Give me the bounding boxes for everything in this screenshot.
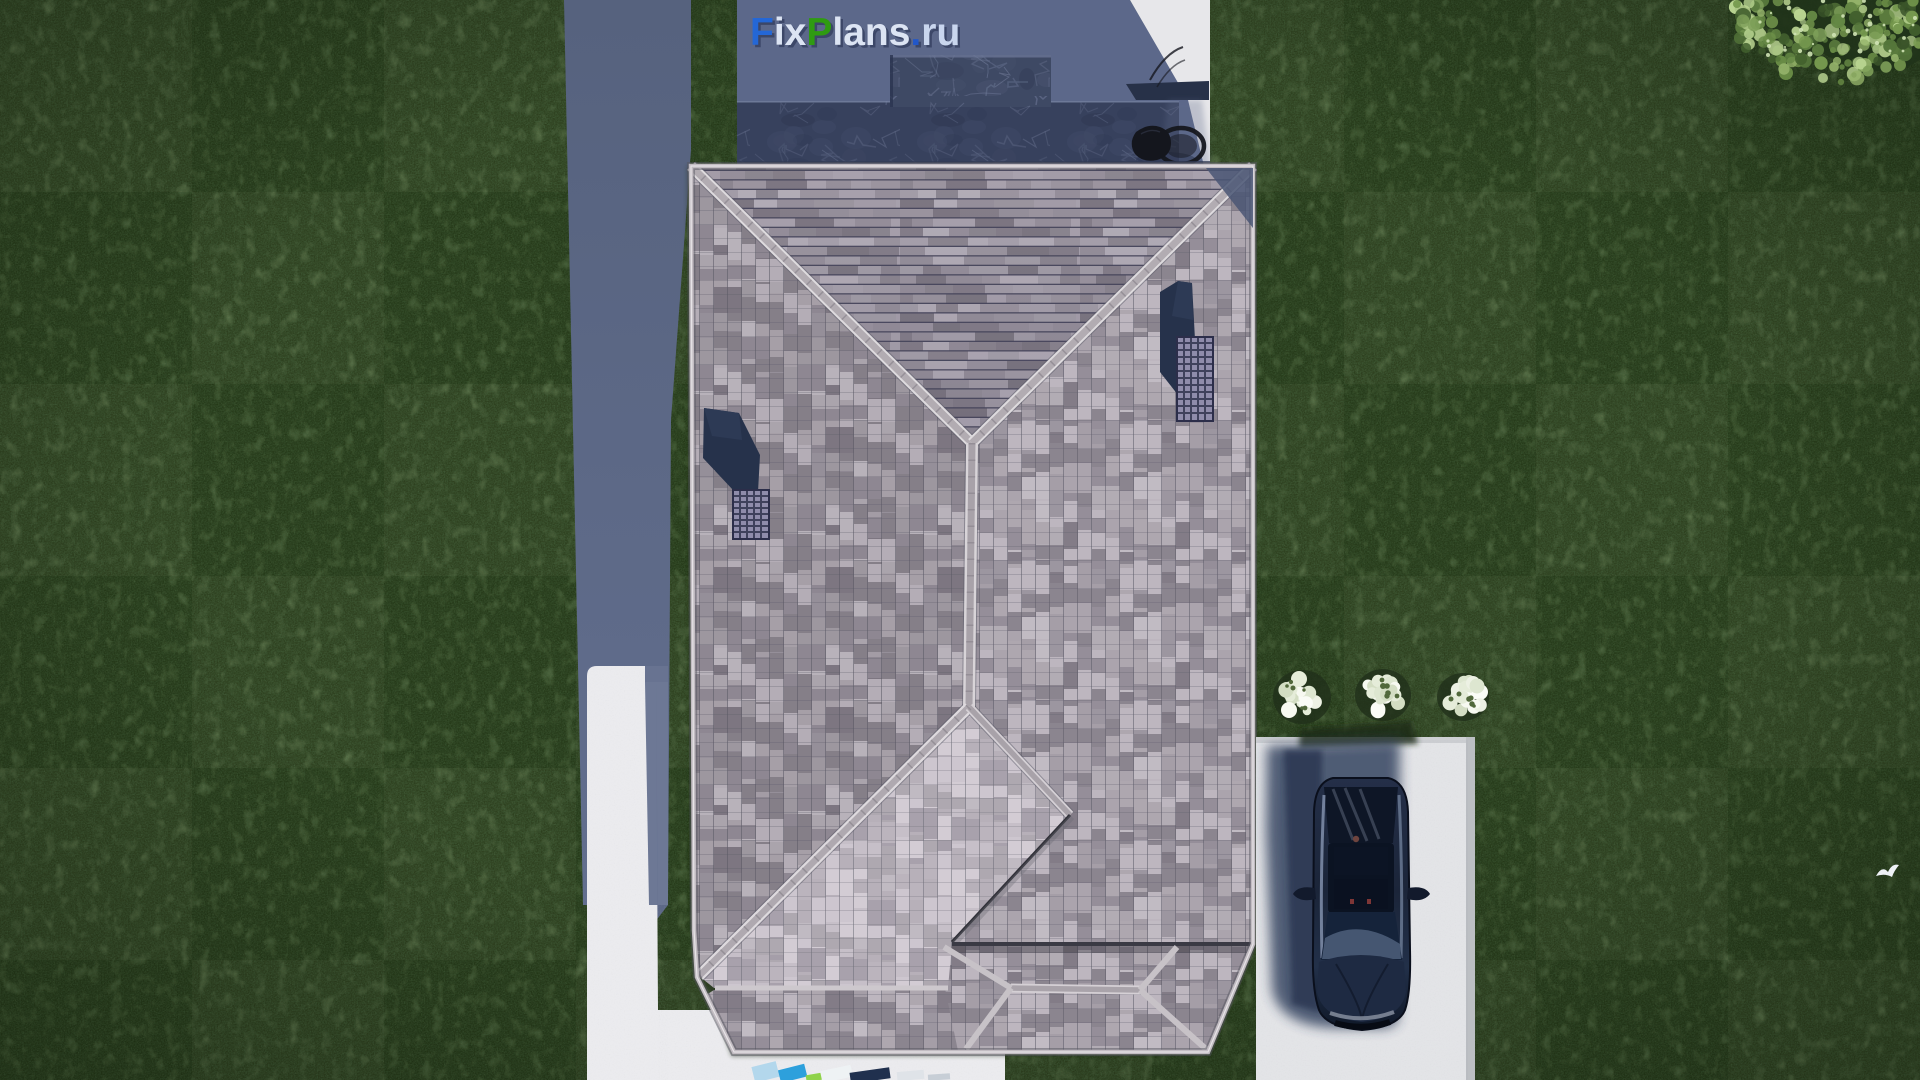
svg-text:FixPlans.ru: FixPlans.ru <box>750 11 960 54</box>
